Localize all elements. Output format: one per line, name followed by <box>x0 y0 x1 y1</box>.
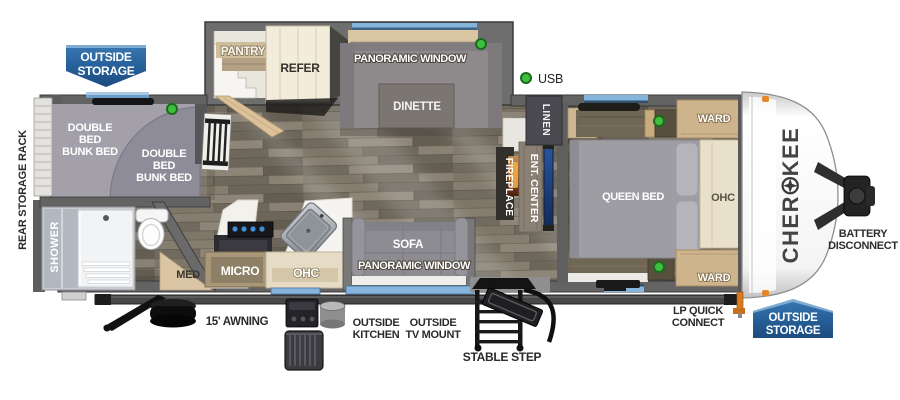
svg-text:FIREPLACE: FIREPLACE <box>503 158 514 217</box>
svg-text:STABLE STEP: STABLE STEP <box>463 350 542 364</box>
svg-text:OUTSIDE: OUTSIDE <box>768 312 818 324</box>
svg-text:DINETTE: DINETTE <box>393 101 441 113</box>
svg-text:LINEN: LINEN <box>540 104 551 137</box>
svg-text:PANORAMIC WINDOW: PANORAMIC WINDOW <box>358 260 471 272</box>
svg-text:BATTERY: BATTERY <box>839 228 889 240</box>
svg-text:OUTSIDE: OUTSIDE <box>80 50 132 64</box>
svg-text:DOUBLE: DOUBLE <box>142 148 187 160</box>
svg-text:BED: BED <box>153 160 176 172</box>
svg-text:BUNK BED: BUNK BED <box>136 172 192 184</box>
svg-text:CHEROKEE: CHEROKEE <box>778 127 803 264</box>
svg-text:OUTSIDE: OUTSIDE <box>353 317 400 329</box>
svg-text:OHC: OHC <box>293 266 319 280</box>
svg-text:SOFA: SOFA <box>393 239 424 251</box>
svg-text:USB: USB <box>538 72 563 86</box>
svg-text:SHOWER: SHOWER <box>49 221 61 272</box>
svg-text:LP QUICK: LP QUICK <box>673 305 723 317</box>
svg-text:ENT. CENTER: ENT. CENTER <box>528 154 540 223</box>
svg-text:WARD: WARD <box>698 272 731 284</box>
svg-text:REFER: REFER <box>280 61 320 75</box>
svg-text:KITCHEN: KITCHEN <box>353 329 400 341</box>
svg-text:MED: MED <box>176 269 200 281</box>
svg-text:STORAGE: STORAGE <box>766 325 821 337</box>
svg-text:WARD: WARD <box>698 113 731 125</box>
svg-text:15' AWNING: 15' AWNING <box>206 316 269 328</box>
svg-text:OUTSIDE: OUTSIDE <box>410 317 457 329</box>
svg-text:DOUBLE: DOUBLE <box>68 122 113 134</box>
svg-text:MICRO: MICRO <box>221 264 260 278</box>
svg-text:BUNK BED: BUNK BED <box>62 146 118 158</box>
svg-text:DISCONNECT: DISCONNECT <box>828 240 898 252</box>
svg-text:TV MOUNT: TV MOUNT <box>405 329 461 341</box>
svg-text:PANTRY: PANTRY <box>221 46 266 58</box>
svg-text:QUEEN BED: QUEEN BED <box>602 191 664 203</box>
svg-text:OHC: OHC <box>711 192 735 204</box>
svg-text:REAR STORAGE RACK: REAR STORAGE RACK <box>17 130 29 250</box>
svg-text:STORAGE: STORAGE <box>77 64 134 78</box>
svg-text:PANORAMIC WINDOW: PANORAMIC WINDOW <box>354 53 467 65</box>
svg-text:BED: BED <box>79 134 102 146</box>
svg-text:CONNECT: CONNECT <box>672 317 725 329</box>
